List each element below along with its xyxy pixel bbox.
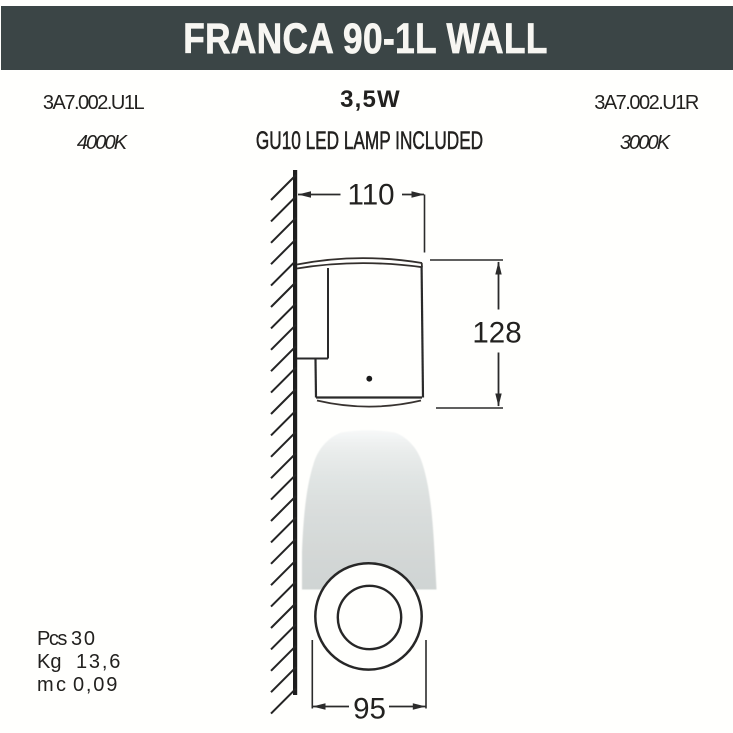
svg-text:110: 110 — [347, 179, 394, 212]
svg-text:128: 128 — [472, 317, 521, 350]
svg-text:95: 95 — [353, 693, 386, 726]
